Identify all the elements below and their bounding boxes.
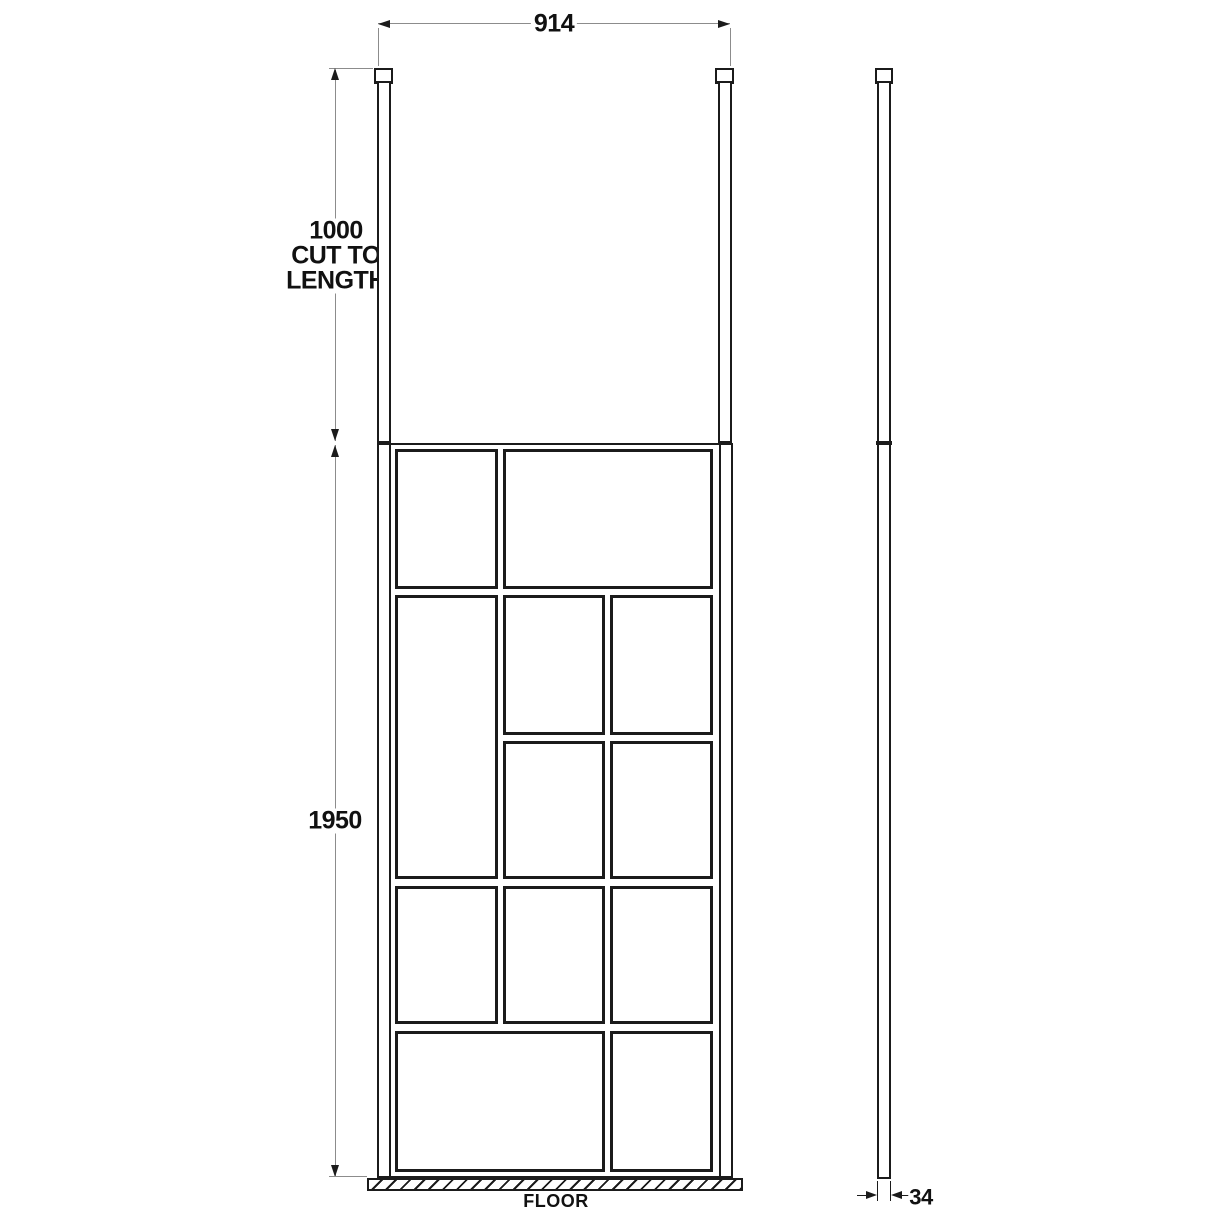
side-panel-profile xyxy=(877,445,891,1179)
glass-pane xyxy=(610,1031,713,1172)
ceiling-post-cap-left xyxy=(374,68,393,84)
thickness-dimension-label: 34 xyxy=(908,1185,933,1210)
extension-line xyxy=(730,28,731,66)
extension-line xyxy=(329,1176,367,1177)
floor-hatch-bar xyxy=(367,1178,743,1191)
glass-pane xyxy=(395,595,498,879)
floor-label: FLOOR xyxy=(523,1191,589,1212)
height-dimension-label: 1950 xyxy=(305,809,365,834)
dimension-arrow-right xyxy=(866,1191,877,1199)
glass-pane xyxy=(610,741,713,879)
glass-pane xyxy=(503,741,605,879)
post-cut-length-label: 1000 CUT TO LENGTH xyxy=(283,219,389,294)
dimension-arrow-up xyxy=(331,68,339,80)
glass-pane xyxy=(395,449,498,589)
side-ceiling-post xyxy=(877,83,891,443)
glass-pane xyxy=(503,886,605,1024)
post-cut-length-line2: CUT TO xyxy=(286,244,386,269)
post-cut-length-line3: LENGTH xyxy=(286,269,386,294)
frame-inner-edge-right xyxy=(719,443,721,1178)
glass-pane xyxy=(610,595,713,735)
ceiling-post-cap-right xyxy=(715,68,734,84)
width-dimension-label: 914 xyxy=(531,12,577,37)
glass-pane xyxy=(503,595,605,735)
glass-pane xyxy=(395,886,498,1024)
extension-line xyxy=(877,1181,878,1201)
extension-line xyxy=(378,28,379,66)
glass-pane xyxy=(395,1031,605,1172)
dimension-arrow-right xyxy=(718,20,730,28)
dimension-arrow-down xyxy=(331,429,339,441)
technical-drawing: 914 1000 CUT TO LENGTH 1950 FLOOR xyxy=(0,0,1224,1224)
ceiling-post-right xyxy=(718,83,732,443)
post-cut-length-line1: 1000 xyxy=(286,219,386,244)
dimension-arrow-left xyxy=(891,1191,902,1199)
dimension-arrow-left xyxy=(378,20,390,28)
dimension-arrow-up xyxy=(331,445,339,457)
side-post-cap xyxy=(875,68,893,84)
glass-pane xyxy=(610,886,713,1024)
ceiling-post-left xyxy=(377,83,391,443)
glass-pane xyxy=(503,449,713,589)
frame-inner-edge-left xyxy=(389,443,391,1178)
